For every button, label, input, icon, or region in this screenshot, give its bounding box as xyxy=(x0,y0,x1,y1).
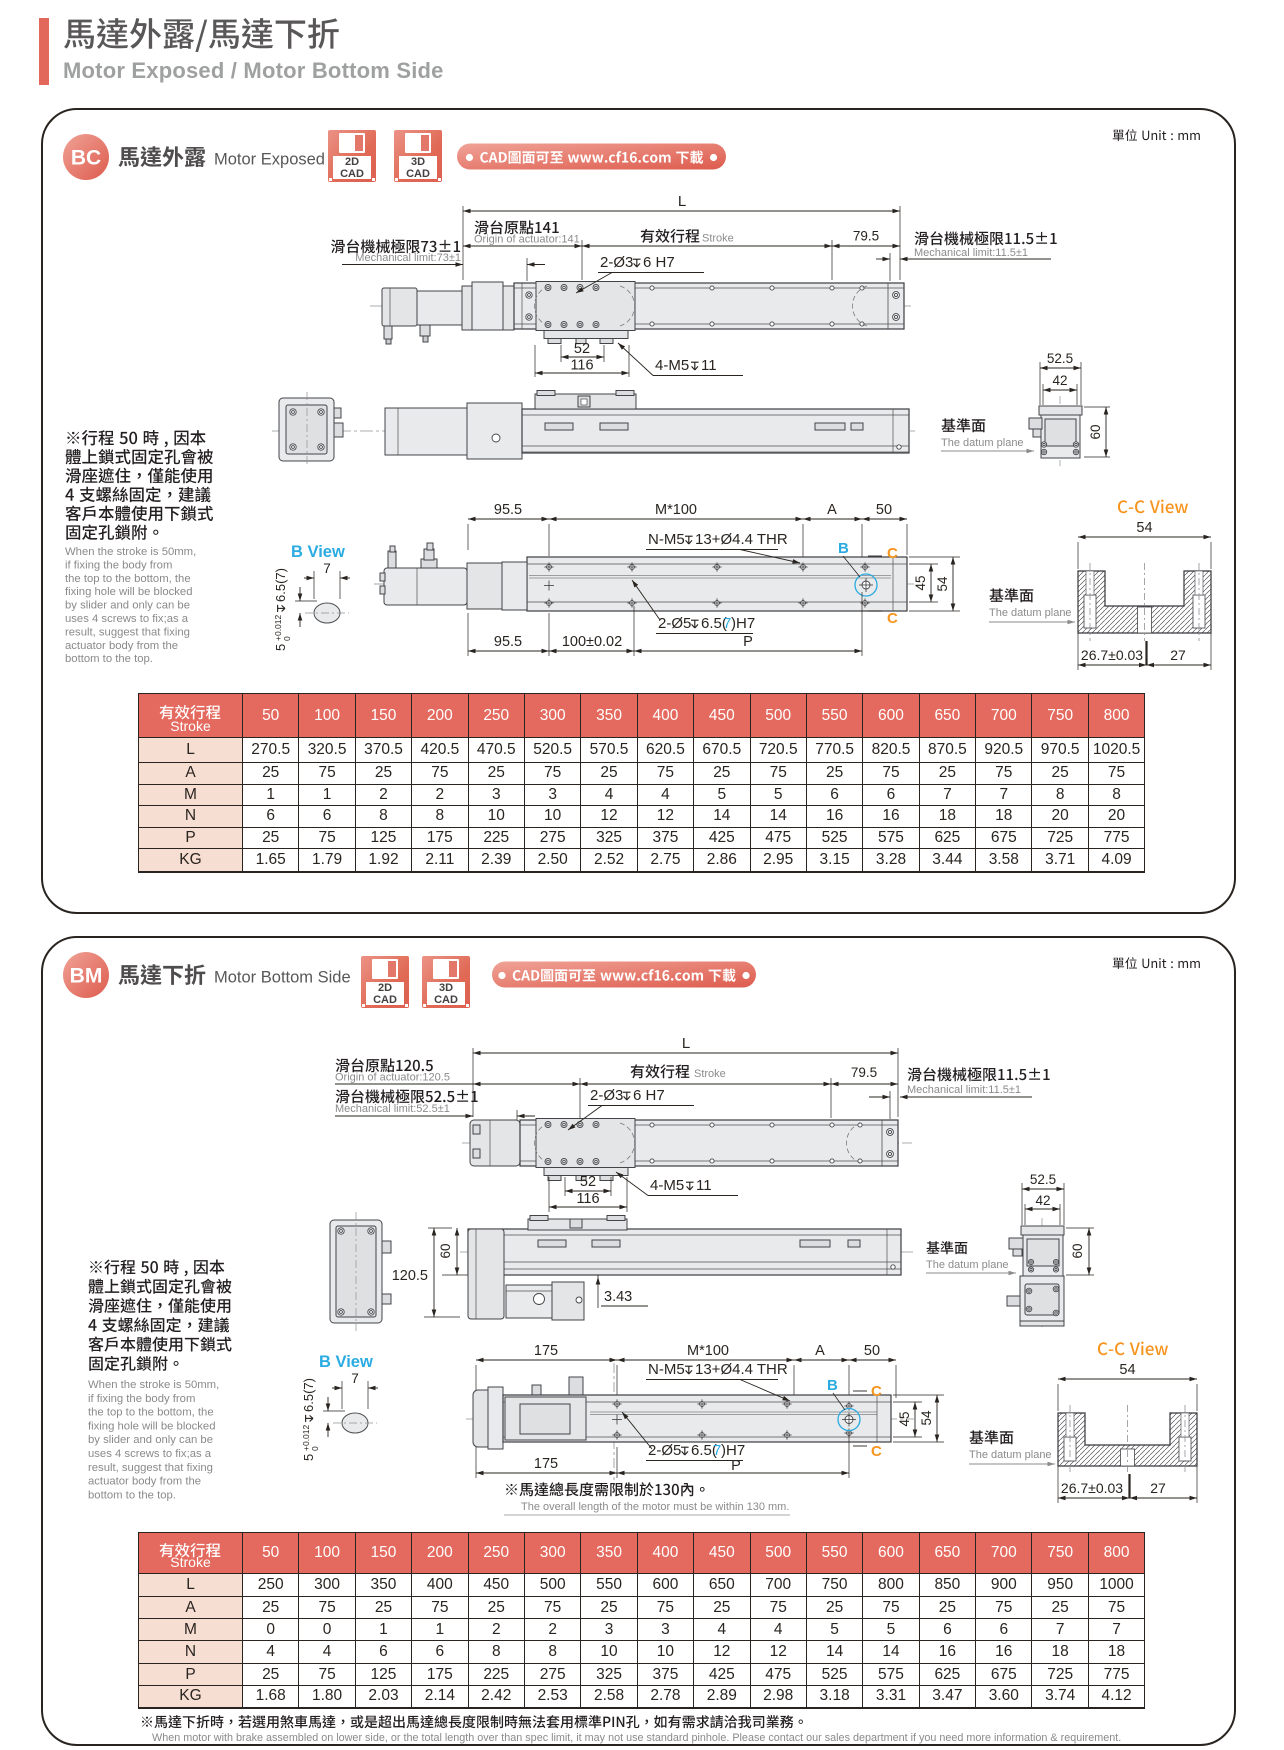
svg-text:116: 116 xyxy=(570,358,593,374)
svg-text:27: 27 xyxy=(1150,1480,1166,1496)
svg-text:The overall length of the moto: The overall length of the motor must be … xyxy=(521,1501,789,1513)
svg-text:The datum plane: The datum plane xyxy=(989,607,1072,619)
svg-text:54: 54 xyxy=(935,576,950,592)
svg-text:60: 60 xyxy=(1070,1243,1085,1258)
svg-text:13+Ø4.4 THR: 13+Ø4.4 THR xyxy=(695,531,788,548)
svg-text:175: 175 xyxy=(534,1456,558,1472)
svg-text:When the stroke is 50mm,: When the stroke is 50mm, xyxy=(65,546,196,558)
svg-text:Mechanical limit:11.5±1: Mechanical limit:11.5±1 xyxy=(907,1084,1021,1096)
svg-text:50: 50 xyxy=(864,1343,880,1359)
svg-text:3.43: 3.43 xyxy=(604,1289,632,1305)
svg-text:B: B xyxy=(838,540,849,557)
svg-text:4-M5: 4-M5 xyxy=(650,1177,684,1194)
svg-text:by slider and only can be: by slider and only can be xyxy=(65,600,190,612)
svg-text:C: C xyxy=(887,545,898,562)
svg-text:50: 50 xyxy=(876,502,892,518)
svg-text:B View: B View xyxy=(291,543,345,561)
svg-text:27: 27 xyxy=(1170,647,1186,663)
svg-text:A: A xyxy=(815,1343,825,1359)
svg-text:42: 42 xyxy=(1052,373,1067,388)
svg-text:the top to the bottom, the: the top to the bottom, the xyxy=(65,573,191,585)
svg-text:B View: B View xyxy=(319,1353,373,1371)
svg-text:L: L xyxy=(678,193,686,210)
svg-text:52: 52 xyxy=(580,1174,596,1190)
svg-text:)H7: )H7 xyxy=(731,615,755,632)
svg-text:L: L xyxy=(682,1035,690,1052)
svg-text:0: 0 xyxy=(282,636,292,641)
svg-text:result, suggest that fixing: result, suggest that fixing xyxy=(88,1462,213,1474)
svg-text:P: P xyxy=(743,634,753,650)
svg-text:the top to the bottom, the: the top to the bottom, the xyxy=(88,1407,214,1419)
svg-text:95.5: 95.5 xyxy=(494,502,522,518)
svg-text:54: 54 xyxy=(1119,1362,1135,1378)
svg-text:)H7: )H7 xyxy=(721,1442,745,1459)
svg-text:Motor Exposed: Motor Exposed xyxy=(214,151,325,169)
svg-text:79.5: 79.5 xyxy=(853,229,879,244)
svg-text:54: 54 xyxy=(919,1410,934,1426)
svg-text:5: 5 xyxy=(273,644,288,651)
svg-text:actuator body from the: actuator body from the xyxy=(65,640,178,652)
svg-text:42: 42 xyxy=(1035,1193,1050,1208)
svg-text:6 H7: 6 H7 xyxy=(643,254,675,271)
svg-text:C: C xyxy=(871,1443,882,1460)
svg-text:11: 11 xyxy=(701,357,717,374)
svg-text:Mechanical limit:11.5±1: Mechanical limit:11.5±1 xyxy=(914,247,1028,259)
svg-text:116: 116 xyxy=(576,1191,599,1207)
svg-text:The datum plane: The datum plane xyxy=(926,1259,1009,1271)
svg-text:if fixing the body from: if fixing the body from xyxy=(88,1393,195,1405)
svg-text:fixing hole will be blocked: fixing hole will be blocked xyxy=(65,586,192,598)
svg-text:45: 45 xyxy=(897,1411,912,1426)
svg-text:175: 175 xyxy=(534,1343,558,1359)
svg-text:6.5(7): 6.5(7) xyxy=(273,568,288,602)
svg-text:13+Ø4.4 THR: 13+Ø4.4 THR xyxy=(695,1361,788,1378)
svg-text:uses 4 screws to fix;as a: uses 4 screws to fix;as a xyxy=(65,613,189,625)
svg-text:26.7±0.03: 26.7±0.03 xyxy=(1081,647,1143,663)
svg-text:uses 4 screws to fix;as a: uses 4 screws to fix;as a xyxy=(88,1448,212,1460)
svg-text:60: 60 xyxy=(438,1243,453,1258)
svg-text:Motor Bottom Side: Motor Bottom Side xyxy=(214,969,351,987)
svg-text:M*100: M*100 xyxy=(687,1343,729,1359)
svg-text:2-Ø5: 2-Ø5 xyxy=(658,615,691,632)
svg-text:2-Ø5: 2-Ø5 xyxy=(648,1442,681,1459)
svg-text:Stroke: Stroke xyxy=(702,233,734,245)
svg-text:26.7±0.03: 26.7±0.03 xyxy=(1061,1480,1123,1496)
svg-text:5: 5 xyxy=(301,1454,316,1461)
svg-text:2-Ø3: 2-Ø3 xyxy=(590,1087,623,1104)
svg-text:bottom to the top.: bottom to the top. xyxy=(65,653,153,665)
svg-text:6 H7: 6 H7 xyxy=(633,1087,665,1104)
svg-text:11: 11 xyxy=(696,1177,712,1194)
svg-text:When the stroke is 50mm,: When the stroke is 50mm, xyxy=(88,1379,219,1391)
svg-text:54: 54 xyxy=(1136,520,1152,536)
svg-text:result, suggest that fixing: result, suggest that fixing xyxy=(65,626,190,638)
svg-text:0: 0 xyxy=(310,1446,320,1451)
svg-text:When motor with brake assemble: When motor with brake assembled on lower… xyxy=(152,1732,1121,1744)
svg-text:The datum plane: The datum plane xyxy=(969,1449,1052,1461)
svg-text:fixing hole will be blocked: fixing hole will be blocked xyxy=(88,1420,215,1432)
svg-text:120.5: 120.5 xyxy=(392,1268,428,1284)
svg-text:Mechanical limit:73±1: Mechanical limit:73±1 xyxy=(355,252,461,264)
svg-text:bottom to the top.: bottom to the top. xyxy=(88,1489,176,1501)
svg-text:by slider and only can be: by slider and only can be xyxy=(88,1434,213,1446)
svg-text:Origin of actuator:120.5: Origin of actuator:120.5 xyxy=(335,1072,450,1084)
svg-text:79.5: 79.5 xyxy=(851,1065,877,1080)
svg-text:7: 7 xyxy=(323,561,331,576)
svg-text:95.5: 95.5 xyxy=(494,634,522,650)
svg-text:52: 52 xyxy=(574,341,590,357)
svg-text:Mechanical limit:52.5±1: Mechanical limit:52.5±1 xyxy=(335,1103,450,1115)
svg-text:52.5: 52.5 xyxy=(1030,1172,1056,1187)
svg-text:if fixing the body from: if fixing the body from xyxy=(65,559,172,571)
svg-text:BM: BM xyxy=(70,965,103,988)
svg-text:C: C xyxy=(887,610,898,627)
svg-text:N-M5: N-M5 xyxy=(648,1361,685,1378)
svg-text:BC: BC xyxy=(71,147,101,170)
svg-text:B: B xyxy=(827,1377,838,1394)
svg-text:45: 45 xyxy=(913,575,928,590)
svg-text:actuator body from the: actuator body from the xyxy=(88,1476,201,1488)
svg-text:4-M5: 4-M5 xyxy=(655,357,689,374)
svg-text:2-Ø3: 2-Ø3 xyxy=(600,254,633,271)
svg-text:6.5(7): 6.5(7) xyxy=(301,1378,316,1412)
svg-text:A: A xyxy=(827,502,837,518)
svg-text:The datum plane: The datum plane xyxy=(941,437,1024,449)
svg-text:Stroke: Stroke xyxy=(694,1068,726,1080)
svg-text:Origin of actuator:141: Origin of actuator:141 xyxy=(474,234,580,246)
svg-text:7: 7 xyxy=(351,1371,359,1386)
svg-text:M*100: M*100 xyxy=(655,502,697,518)
svg-text:52.5: 52.5 xyxy=(1047,351,1073,366)
svg-text:100±0.02: 100±0.02 xyxy=(562,634,622,650)
svg-text:60: 60 xyxy=(1088,424,1103,439)
svg-text:N-M5: N-M5 xyxy=(648,531,685,548)
svg-text:C: C xyxy=(871,1383,882,1400)
